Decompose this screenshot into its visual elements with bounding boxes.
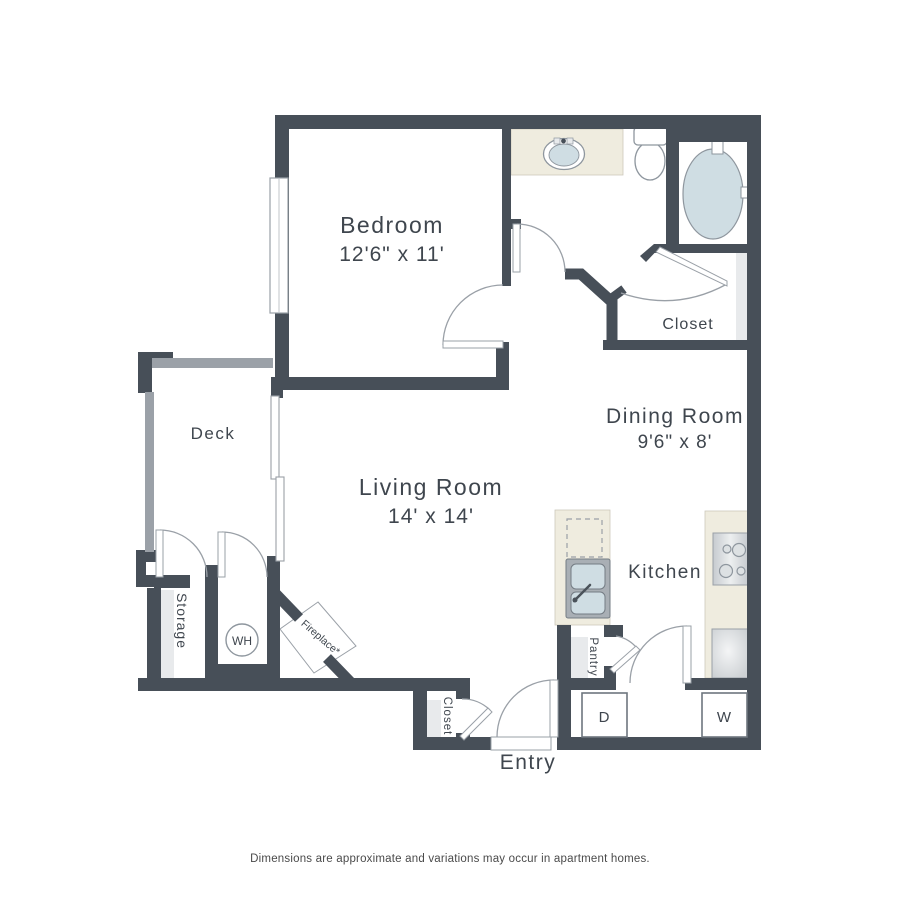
pantry-shelf: [571, 637, 588, 678]
storage-label: Storage: [174, 593, 190, 649]
living-room-label: Living Room: [359, 474, 503, 500]
bedroom-door: [443, 285, 503, 348]
water-heater-door: [218, 532, 267, 577]
dining-room-dims: 9'6" x 8': [638, 432, 713, 453]
kitchen-sink-icon: [566, 559, 610, 618]
deck-label: Deck: [191, 424, 236, 443]
floor-plan-page: Bedroom 12'6" x 11' Living Room 14' x 14…: [0, 0, 900, 900]
kitchen-label: Kitchen: [628, 562, 702, 583]
bedroom-window: [270, 178, 288, 313]
bathtub-icon: [683, 140, 751, 239]
bathroom-fixtures: [544, 127, 752, 239]
living-room-dims: 14' x 14': [388, 505, 474, 528]
deck-railing: [145, 358, 273, 552]
stove-icon: [713, 533, 748, 585]
hall-closet-shelf: [736, 252, 748, 340]
pantry-label: Pantry: [587, 637, 599, 676]
hall-closet-label: Closet: [662, 316, 713, 333]
storage-door: [156, 530, 207, 577]
bedroom-label: Bedroom: [340, 212, 444, 238]
washer-label: W: [717, 709, 732, 726]
toilet-icon: [634, 127, 667, 180]
entry-closet-shelf: [427, 700, 441, 737]
disclaimer-text: Dimensions are approximate and variation…: [250, 853, 650, 865]
hall-closet-door: [621, 247, 727, 301]
entry-door: [491, 680, 558, 750]
entry-closet-label: Closet: [441, 697, 453, 736]
dining-room-label: Dining Room: [606, 405, 744, 428]
bathroom-door: [513, 224, 565, 272]
entry-label: Entry: [500, 751, 557, 774]
storage-shelf: [161, 590, 174, 678]
water-heater-label: WH: [232, 634, 252, 648]
labels: Bedroom 12'6" x 11' Living Room 14' x 14…: [174, 212, 744, 865]
refrigerator-icon: [712, 629, 748, 678]
entry-threshold: [491, 737, 551, 750]
kitchen-door: [630, 626, 691, 683]
floor-plan: Bedroom 12'6" x 11' Living Room 14' x 14…: [0, 0, 900, 900]
bathroom-sink-icon: [544, 138, 585, 170]
entry-closet-door: [460, 699, 492, 740]
pantry-door: [610, 636, 640, 673]
bedroom-dims: 12'6" x 11': [339, 243, 444, 266]
deck-sliding-door: [271, 396, 284, 561]
dryer-label: D: [599, 709, 610, 726]
